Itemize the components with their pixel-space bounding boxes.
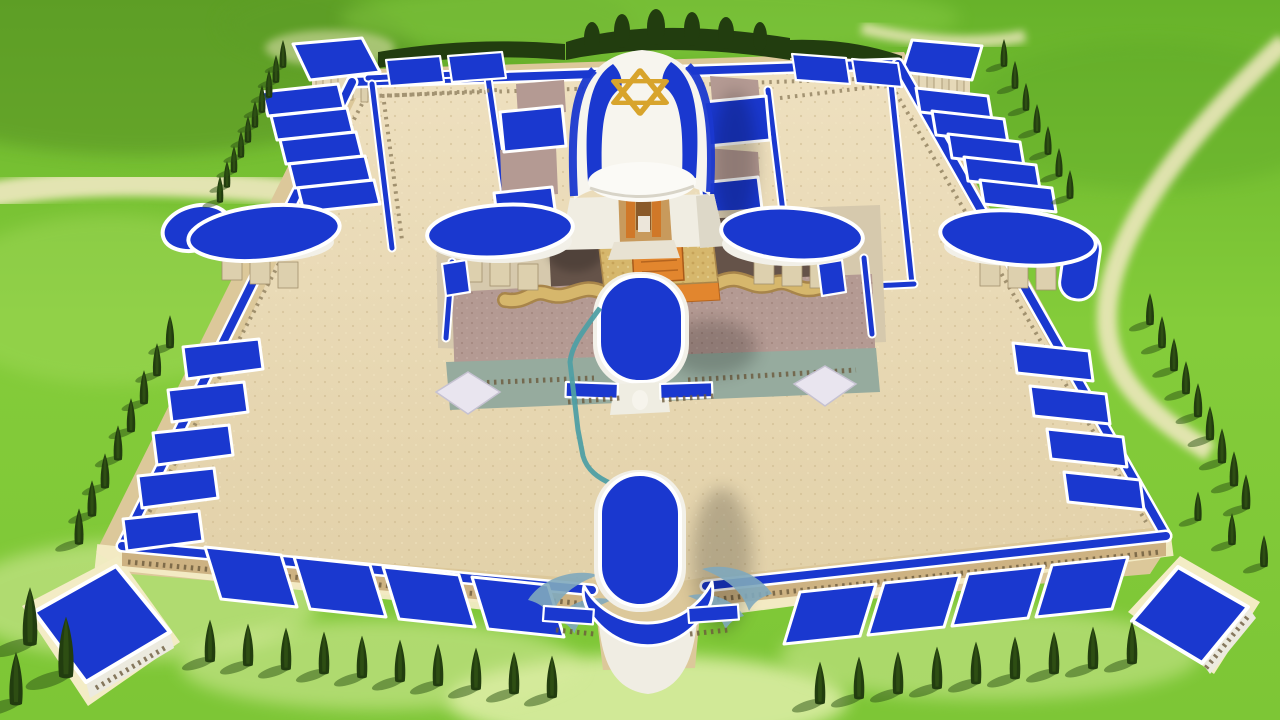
- colonnade-column: [518, 264, 538, 290]
- roof-panel: [1030, 386, 1110, 424]
- roof-panel: [386, 56, 444, 86]
- colonnade-column: [278, 262, 298, 288]
- roof-panel: [442, 260, 470, 296]
- figure: [632, 390, 648, 410]
- roof-panel: [792, 54, 850, 84]
- pavilion-roof: [902, 40, 982, 80]
- chamber-canopy: [500, 106, 566, 152]
- roof-panel: [1064, 472, 1144, 510]
- temple-steps: [608, 240, 680, 260]
- flank-bar: [688, 605, 739, 623]
- roof-panel: [448, 52, 506, 82]
- flank-bar: [543, 606, 594, 624]
- colonnade-column: [490, 260, 510, 286]
- colonnade-column: [1036, 264, 1056, 290]
- temple-complex-scene: Aerial 3D render of a temple complex: ro…: [0, 0, 1280, 720]
- roof-panel: [1047, 429, 1127, 467]
- roof-panel: [1013, 343, 1093, 381]
- scene-3d-temple-render: Aerial 3D render of a temple complex: ro…: [0, 0, 1280, 720]
- roof-panel: [818, 260, 846, 296]
- capsule-roof: [600, 474, 680, 606]
- entrance-figure: [638, 216, 650, 232]
- capsule-roof: [599, 276, 683, 382]
- roof-panel: [852, 59, 902, 87]
